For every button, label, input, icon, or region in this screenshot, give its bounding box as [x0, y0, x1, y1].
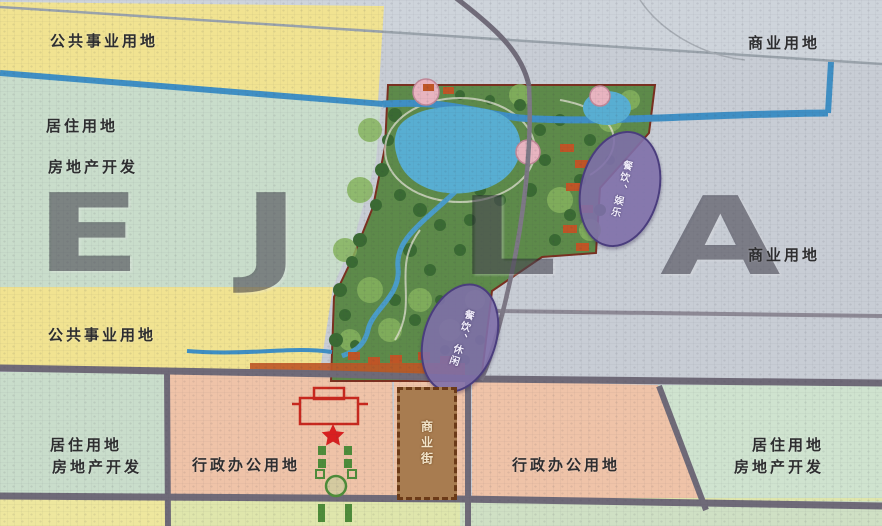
callout-north-label: 餐饮、娱乐 — [605, 158, 634, 220]
watermark-letter-a: A — [660, 183, 781, 291]
label-admin-office-left: 行政办公用地 — [192, 454, 300, 475]
label-residential-bottom-left-2: 房地产开发 — [52, 456, 142, 477]
label-residential-bottom-right-2: 房地产开发 — [734, 456, 824, 477]
label-public-utility-mid-left: 公共事业用地 — [48, 324, 156, 345]
label-public-utility-top-left: 公共事业用地 — [50, 30, 158, 51]
label-admin-office-right: 行政办公用地 — [512, 454, 620, 475]
watermark-letter-j: J — [242, 180, 300, 288]
label-residential-bottom-left-1: 居住用地 — [50, 434, 122, 455]
label-commercial-top-right: 商业用地 — [748, 32, 820, 53]
commercial-street-block: 商业街 — [397, 387, 457, 500]
watermark-letter-e: E — [35, 180, 141, 288]
commercial-street-label: 商业街 — [419, 420, 436, 468]
roundabout — [326, 476, 346, 496]
label-residential-left-1: 居住用地 — [46, 115, 118, 136]
label-residential-bottom-right-1: 居住用地 — [752, 434, 824, 455]
planning-map-canvas: E J L A 餐饮、娱乐 餐饮、休闲 商业街 公共事业用地 商业用地 居住用地… — [0, 0, 882, 526]
watermark-letter-l: L — [458, 183, 557, 291]
label-commercial-mid-right: 商业用地 — [748, 244, 820, 265]
label-residential-left-2: 房地产开发 — [48, 156, 138, 177]
callout-south-label: 餐饮、休闲 — [444, 307, 477, 369]
